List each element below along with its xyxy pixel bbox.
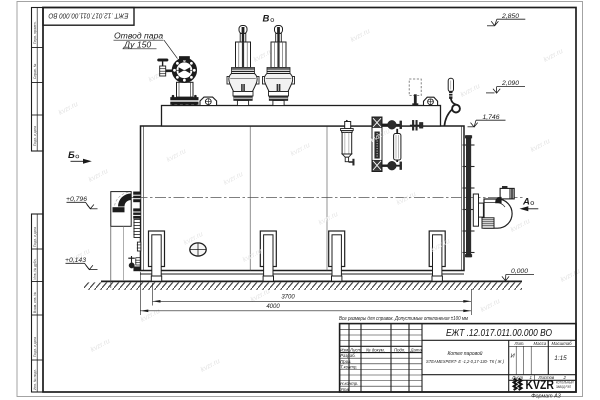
svg-text:Все размеры для справок. Допус: Все размеры для справок. Допустимые откл… [339, 316, 468, 322]
svg-text:1,746: 1,746 [482, 114, 499, 121]
svg-text:А: А [522, 197, 530, 208]
svg-text:Взам. инв. №: Взам. инв. № [33, 292, 37, 313]
svg-text:Масса: Масса [534, 341, 547, 346]
svg-text:1:15: 1:15 [554, 355, 567, 362]
svg-text:Котел паровой: Котел паровой [448, 350, 483, 357]
svg-text:Т.контр.: Т.контр. [340, 364, 357, 369]
svg-text:Утв.: Утв. [340, 387, 350, 392]
svg-text:ЗАВОД РЭП: ЗАВОД РЭП [556, 385, 571, 389]
svg-text:KVZR: KVZR [526, 377, 555, 392]
svg-text:4000: 4000 [266, 304, 280, 310]
svg-text:2,090: 2,090 [501, 80, 519, 87]
svg-text:Подп. и дата: Подп. и дата [33, 337, 37, 357]
svg-text:ЕЖТ .12.017.011.00.000 ВО: ЕЖТ .12.017.011.00.000 ВО [48, 12, 128, 19]
svg-text:Б: Б [68, 150, 75, 161]
svg-text:Подп. и дата: Подп. и дата [33, 227, 37, 247]
svg-text:Формат А3: Формат А3 [531, 393, 561, 399]
svg-text:Перв. примен.: Перв. примен. [33, 21, 37, 44]
svg-text:2,850: 2,850 [501, 13, 519, 20]
svg-text:Инв. № дубл.: Инв. № дубл. [33, 258, 37, 279]
svg-text:Масштаб: Масштаб [552, 341, 573, 346]
svg-text:КОТЕЛЬНЫЙ: КОТЕЛЬНЫЙ [556, 381, 574, 385]
svg-text:0,000: 0,000 [511, 268, 528, 275]
svg-text:Ду 150: Ду 150 [123, 39, 151, 49]
svg-text:Дата: Дата [410, 347, 423, 352]
svg-text:ЕЖТ .12.017.011.00.000 ВО: ЕЖТ .12.017.011.00.000 ВО [446, 328, 552, 339]
svg-text:Изм.: Изм. [340, 347, 349, 352]
svg-text:Лит.: Лит. [514, 341, 525, 346]
svg-text:В: В [263, 14, 270, 25]
svg-text:Лист: Лист [349, 347, 361, 352]
svg-text:+0,796: +0,796 [66, 196, 87, 203]
svg-text:+0,143: +0,143 [65, 257, 86, 264]
svg-text:Инв. № подл.: Инв. № подл. [33, 369, 37, 390]
svg-text:Справ. №: Справ. № [33, 63, 37, 79]
svg-text:Пров.: Пров. [340, 359, 351, 364]
svg-text:Подп.: Подп. [394, 347, 405, 352]
svg-text:3700: 3700 [281, 295, 295, 301]
svg-text:Н.контр.: Н.контр. [340, 381, 358, 386]
svg-text:Разраб.: Разраб. [340, 353, 356, 358]
svg-text:№ докум.: № докум. [366, 347, 385, 352]
svg-text:STEAMEXPERT- Е -1,2-0,17-130-: STEAMEXPERT- Е -1,2-0,17-130- ТК ( Ж ) [426, 359, 504, 364]
svg-text:Подп. и дата: Подп. и дата [33, 126, 37, 146]
